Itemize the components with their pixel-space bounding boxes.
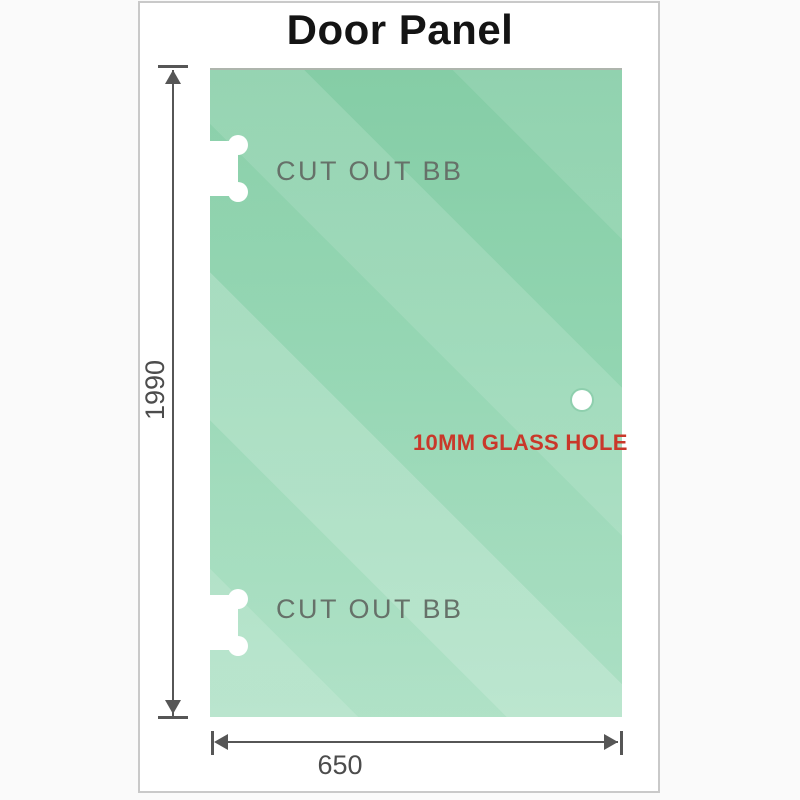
arrow-down-icon	[165, 700, 181, 714]
cutout-lobe-icon	[228, 636, 248, 656]
page-title: Door Panel	[139, 6, 661, 54]
cutout-top-label: CUT OUT BB	[276, 156, 464, 187]
height-dim-tick-top	[158, 65, 188, 68]
hinge-cutout-top	[210, 135, 258, 202]
width-dim-value: 650	[305, 750, 375, 781]
glass-hole-label: 10MM GLASS HOLE	[413, 430, 628, 456]
diagram-canvas: Door Panel CUT OUT BB CUT OUT BB 10MM GL…	[0, 0, 800, 800]
door-panel-glass: CUT OUT BB CUT OUT BB 10MM GLASS HOLE	[210, 68, 622, 717]
arrow-left-icon	[214, 734, 228, 750]
height-dim-value: 1990	[140, 350, 170, 430]
arrow-right-icon	[604, 734, 618, 750]
glass-hole	[572, 390, 592, 410]
arrow-up-icon	[165, 70, 181, 84]
width-dim-line	[216, 741, 618, 743]
hinge-cutout-bottom	[210, 589, 258, 656]
cutout-lobe-icon	[228, 182, 248, 202]
cutout-bottom-label: CUT OUT BB	[276, 594, 464, 625]
height-dim-line	[172, 70, 174, 716]
height-dim-tick-bottom	[158, 716, 188, 719]
width-dim-tick-right	[620, 731, 623, 755]
